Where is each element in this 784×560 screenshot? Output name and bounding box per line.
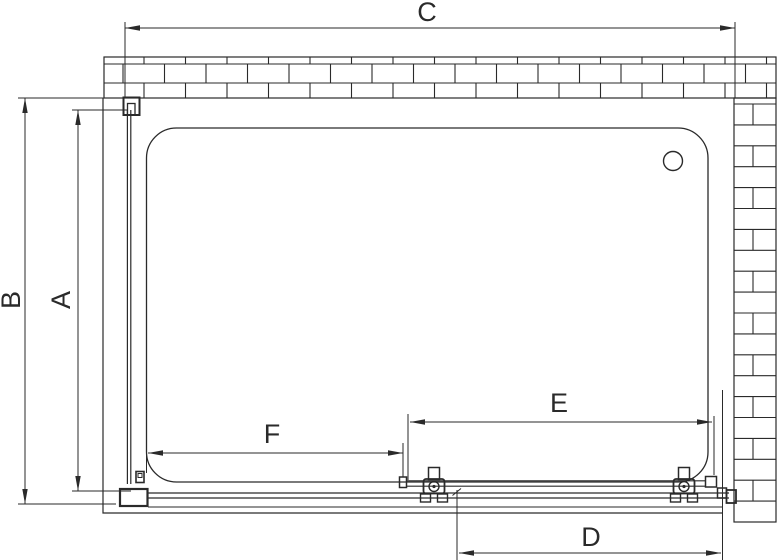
side-wall — [734, 98, 776, 522]
door-rollers — [421, 468, 698, 503]
dimension-annotations: CBAFED — [0, 0, 735, 560]
dimension-arrowhead — [75, 476, 80, 491]
dimension-label-F: F — [264, 419, 281, 449]
dimension-arrowhead — [697, 419, 712, 424]
roller-tab — [429, 468, 440, 480]
side-glass-panel — [127, 110, 130, 484]
dimension-F: F — [148, 419, 403, 456]
shower-enclosure-plan-drawing: CBAFED — [0, 0, 784, 560]
dimension-A: A — [46, 110, 81, 491]
wall-profile-outer — [124, 98, 140, 116]
tray-platform-outline — [103, 98, 723, 513]
dimension-label-D: D — [581, 522, 601, 552]
dimension-arrowhead — [125, 25, 140, 30]
dimension-arrowhead — [388, 450, 403, 455]
roller-axle — [432, 485, 435, 488]
dimension-C: C — [125, 0, 735, 31]
technical-drawing-canvas: CBAFED — [0, 0, 784, 560]
shower-tray — [147, 128, 709, 482]
dimension-label-C: C — [417, 0, 437, 27]
dimension-label-E: E — [550, 388, 568, 418]
glass-clip-detail — [138, 474, 142, 478]
dimension-arrowhead — [148, 450, 163, 455]
drain-icon — [664, 152, 683, 171]
back-wall-outline — [104, 57, 776, 98]
back-wall — [104, 57, 776, 98]
dimension-arrowhead — [22, 489, 27, 504]
dimension-arrowhead — [459, 550, 474, 555]
dimension-arrowhead — [720, 25, 735, 30]
wall-bracket-right — [718, 488, 737, 503]
roller-assembly — [671, 468, 698, 503]
roller-tab — [679, 468, 690, 480]
dimension-arrowhead — [410, 419, 425, 424]
shower-tray-outline — [147, 128, 709, 482]
side-wall-outline — [734, 98, 776, 522]
corner-post — [120, 489, 148, 506]
dimension-D: D — [459, 522, 721, 556]
dimension-E: E — [410, 388, 712, 425]
dimension-B: B — [0, 98, 28, 504]
track-end-cap-right — [706, 477, 717, 488]
dimension-arrowhead — [22, 98, 27, 113]
dimension-label-B: B — [0, 291, 26, 309]
roller-assembly — [421, 468, 448, 503]
roller-axle — [682, 485, 685, 488]
dimension-arrowhead — [75, 110, 80, 125]
dimension-arrowhead — [706, 550, 721, 555]
wall-profile-top — [124, 98, 140, 116]
dimension-label-A: A — [46, 291, 76, 309]
corner-profile-bottom — [120, 472, 148, 507]
